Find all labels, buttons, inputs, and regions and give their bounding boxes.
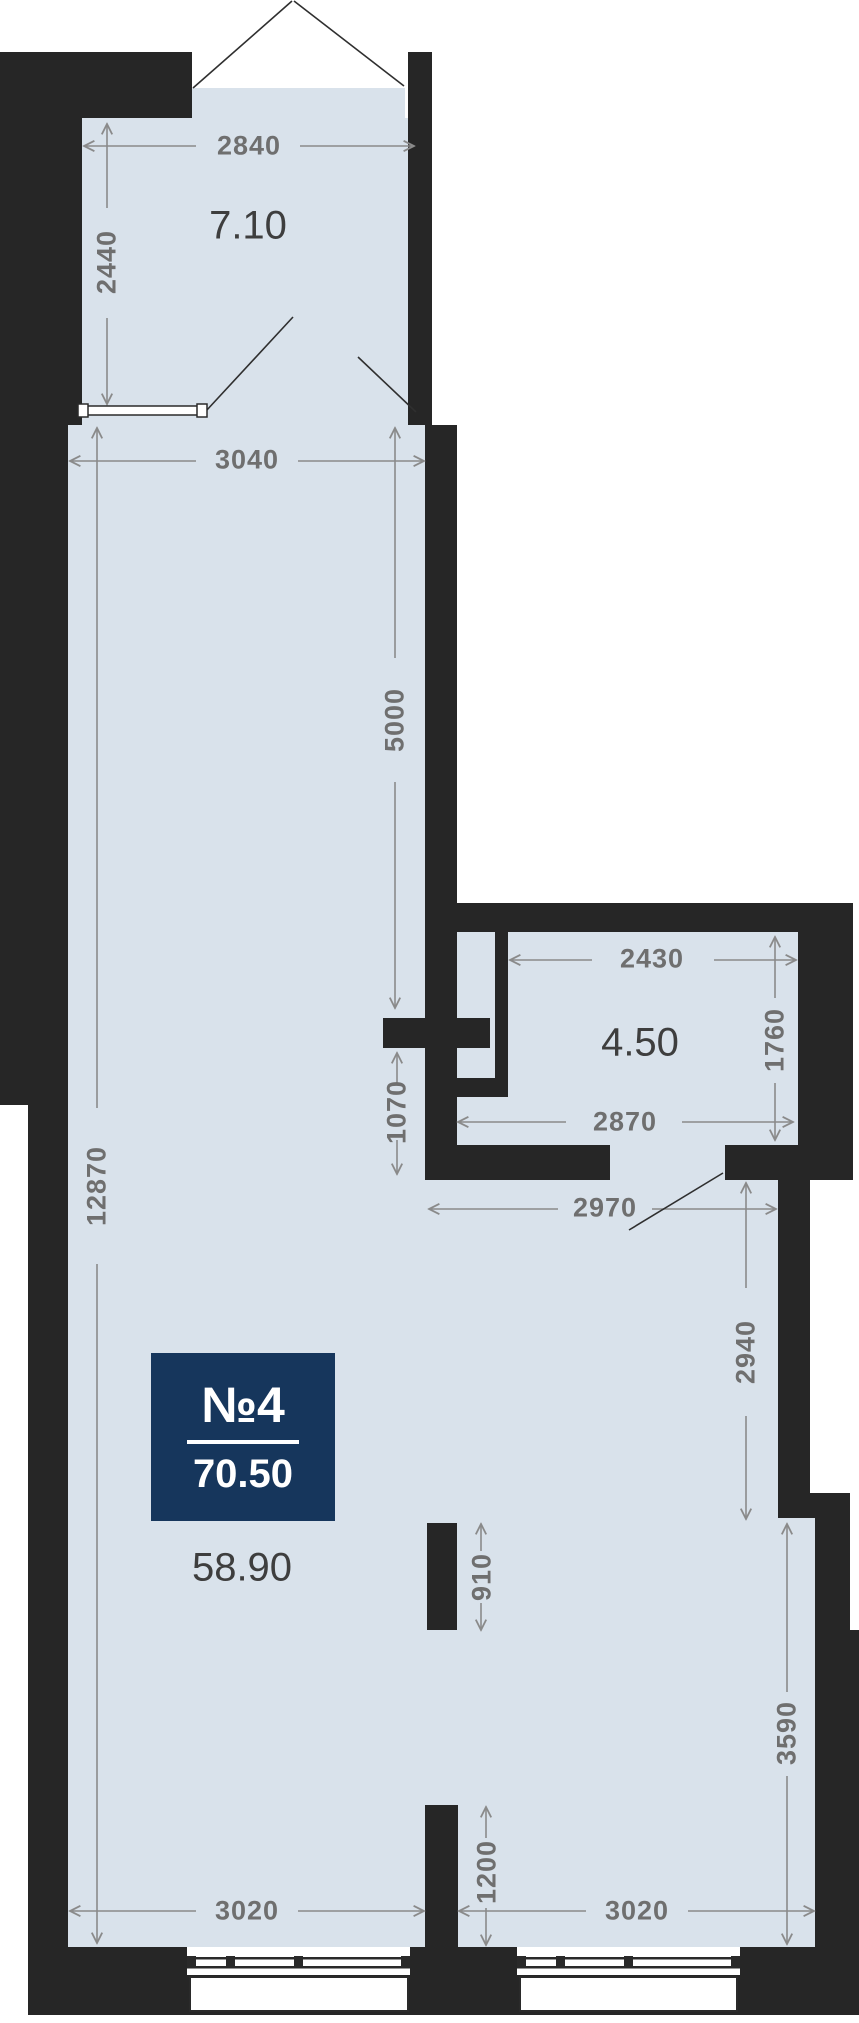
dim-hall-right: 2940: [731, 1320, 762, 1384]
dim-room-width: 3040: [215, 445, 279, 476]
dim-bath-right: 1760: [760, 1008, 791, 1072]
room-area-bathroom: 4.50: [601, 1021, 679, 1066]
dim-wall-upper: 5000: [380, 688, 411, 752]
dim-hall-width: 2970: [573, 1193, 637, 1224]
dim-room-height: 12870: [82, 1146, 113, 1226]
dim-bath-top: 2430: [620, 944, 684, 975]
dim-stub-lower: 1200: [472, 1840, 503, 1904]
room-area-living: 58.90: [192, 1546, 292, 1591]
unit-number: №4: [201, 1380, 285, 1430]
dim-bath-bottom: 2870: [593, 1107, 657, 1138]
dim-balcony-width: 2840: [217, 131, 281, 162]
dim-passage: 1070: [382, 1080, 413, 1144]
unit-total-area: 70.50: [193, 1454, 293, 1494]
badge-divider: [187, 1440, 299, 1444]
dim-bottom-right: 3020: [605, 1896, 669, 1927]
room-area-balcony: 7.10: [209, 204, 287, 249]
bottom-window-right-symbol: [517, 1947, 740, 2011]
floor-plan: 7.10 4.50 58.90 2840 2440 3040 5000 1287…: [0, 0, 859, 2023]
bottom-window-left-symbol: [187, 1947, 410, 2011]
dim-balcony-depth: 2440: [92, 230, 123, 294]
balcony-window-symbol: [78, 404, 207, 417]
dimension-layer: [0, 0, 859, 2023]
dim-lower-right: 3590: [772, 1701, 803, 1765]
unit-badge: №4 70.50: [151, 1353, 335, 1521]
dimension-lines: [70, 124, 814, 1945]
dim-bottom-left: 3020: [215, 1896, 279, 1927]
dim-stub-upper: 910: [467, 1553, 498, 1601]
